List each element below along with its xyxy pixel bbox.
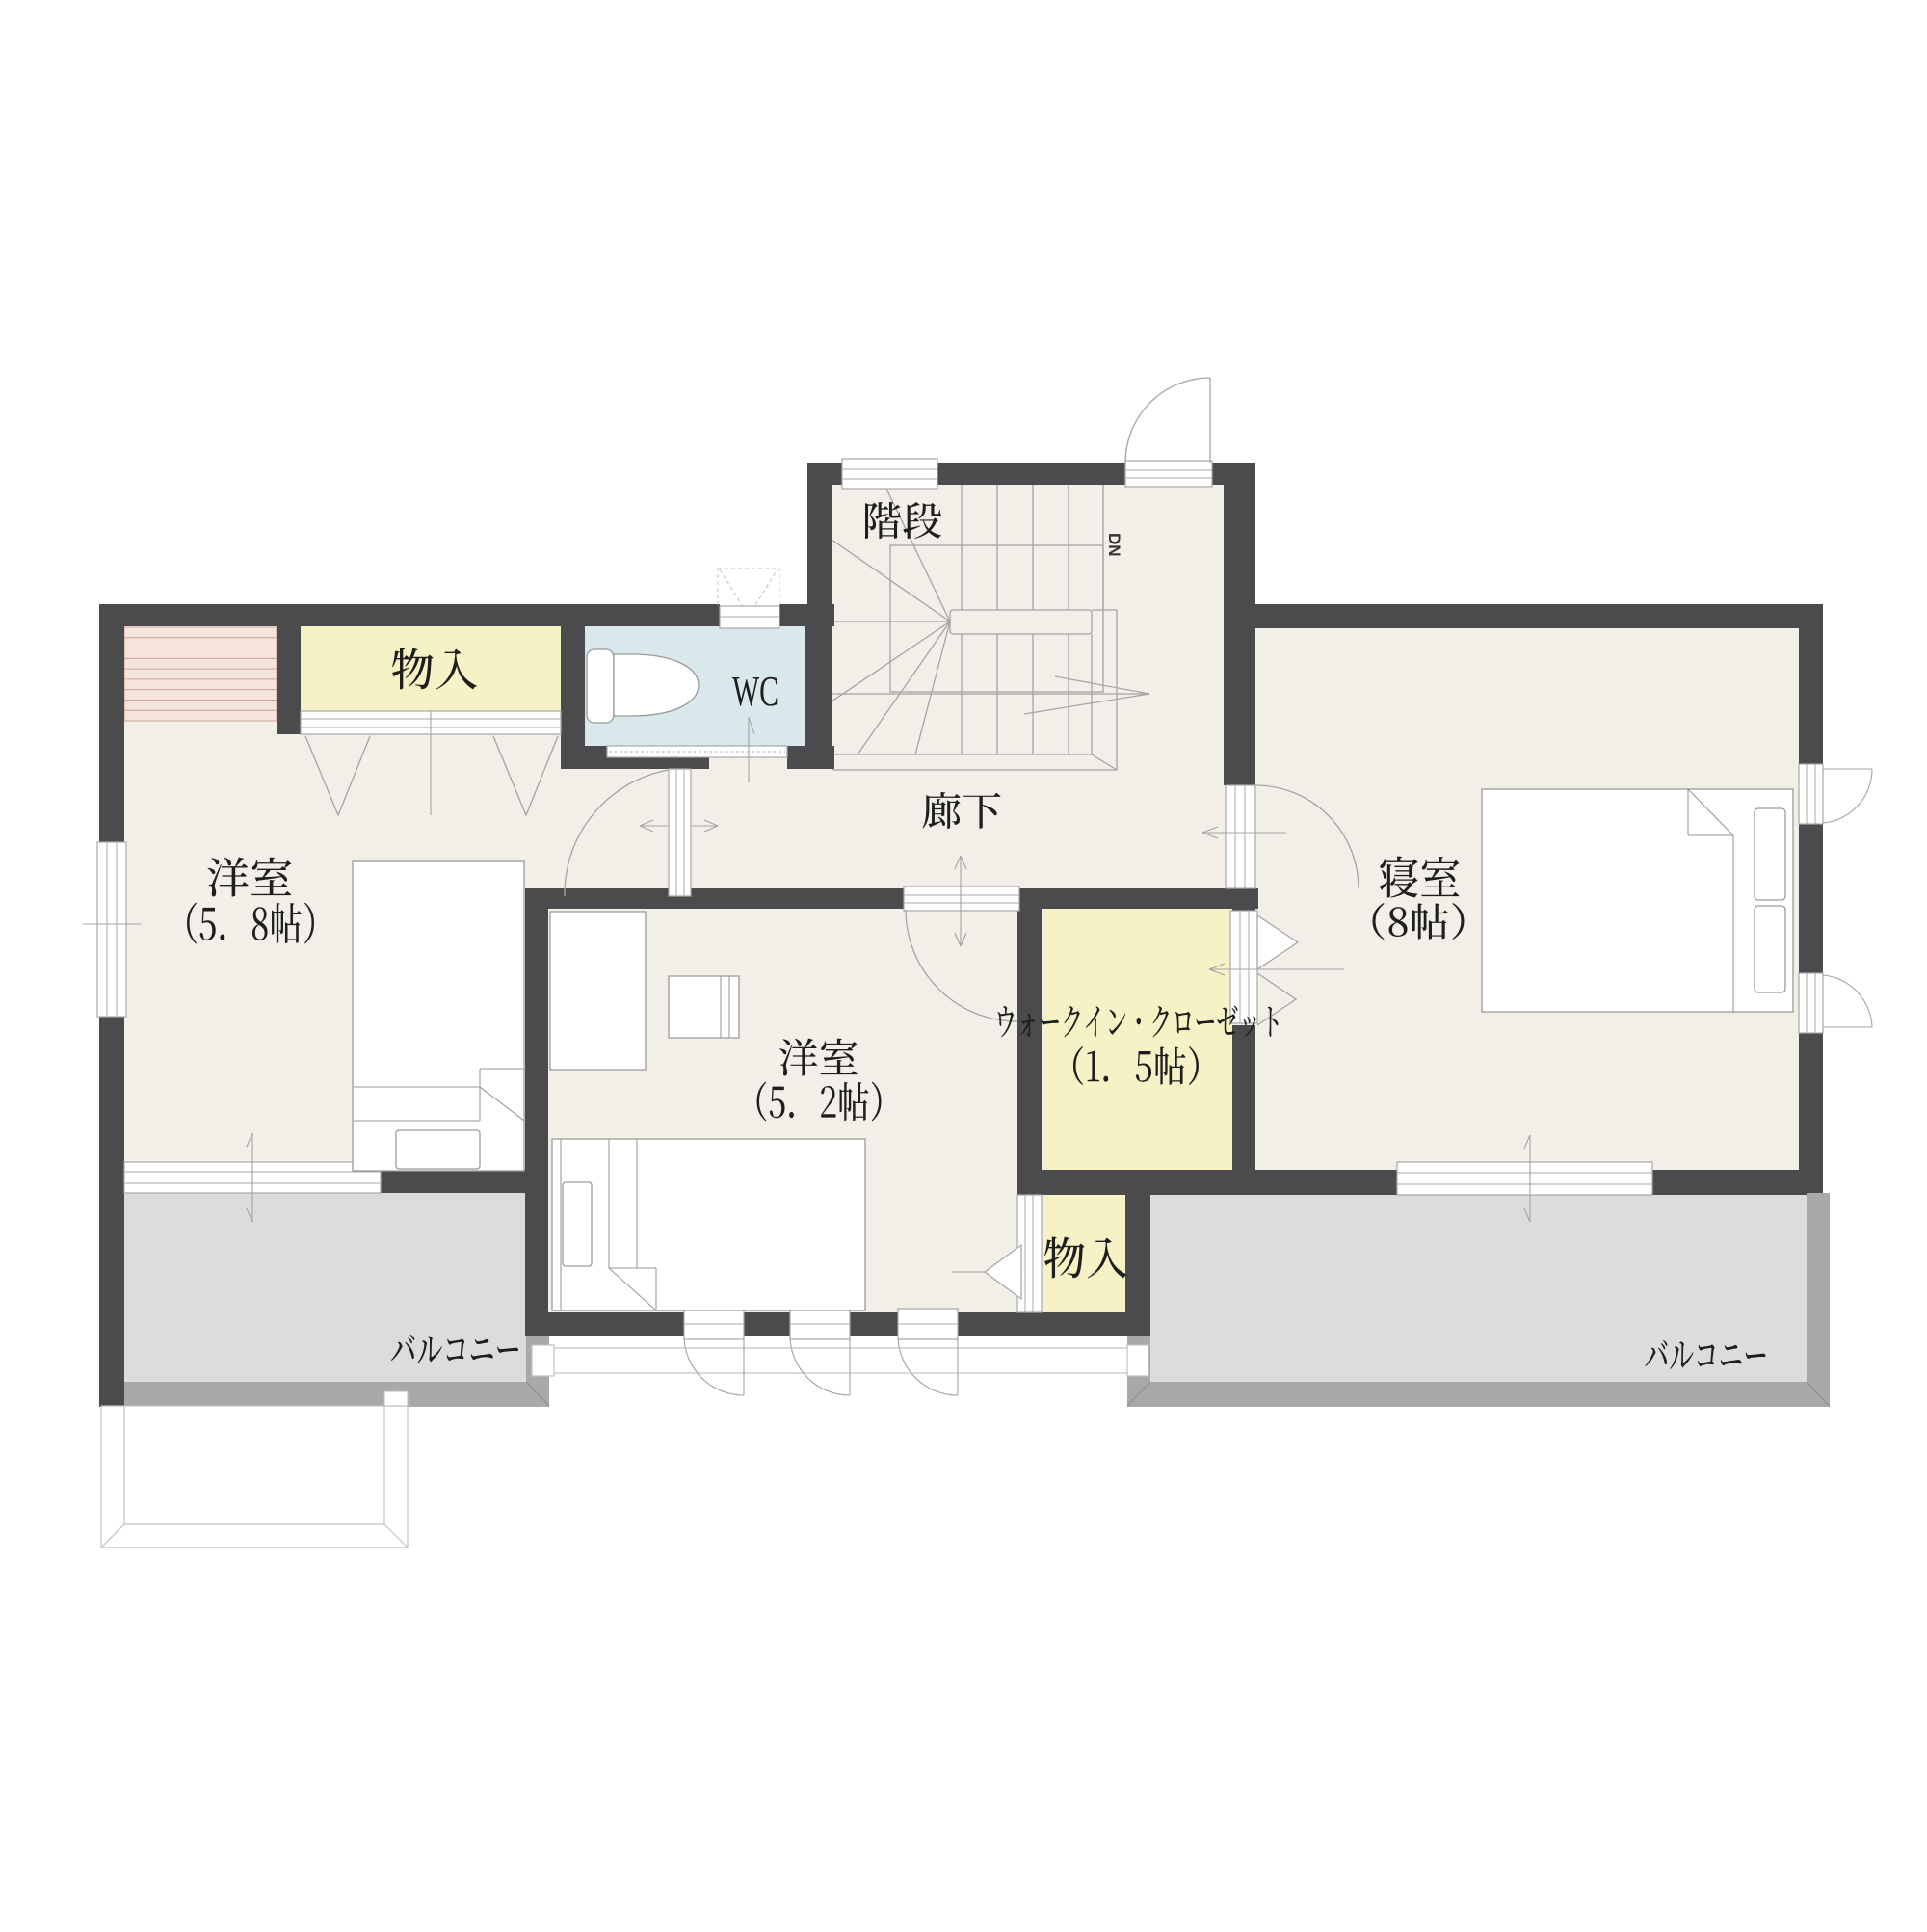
svg-text:DN: DN bbox=[1105, 533, 1123, 557]
svg-text:WC: WC bbox=[732, 668, 779, 715]
